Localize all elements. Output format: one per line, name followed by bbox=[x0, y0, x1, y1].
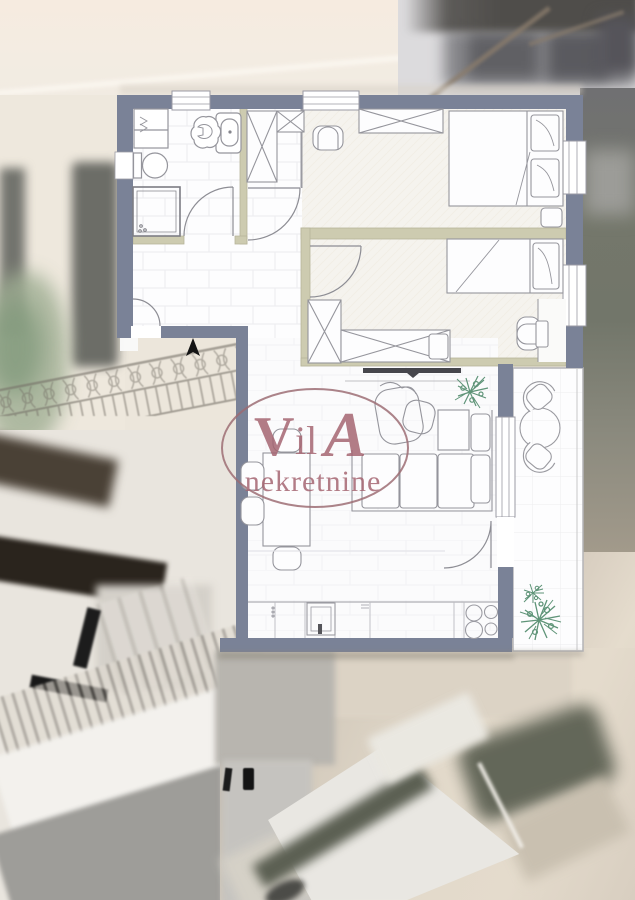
svg-text:nekretnine: nekretnine bbox=[245, 465, 382, 498]
svg-text:il: il bbox=[295, 418, 317, 463]
svg-text:V: V bbox=[254, 406, 294, 468]
svg-text:A: A bbox=[320, 399, 367, 470]
